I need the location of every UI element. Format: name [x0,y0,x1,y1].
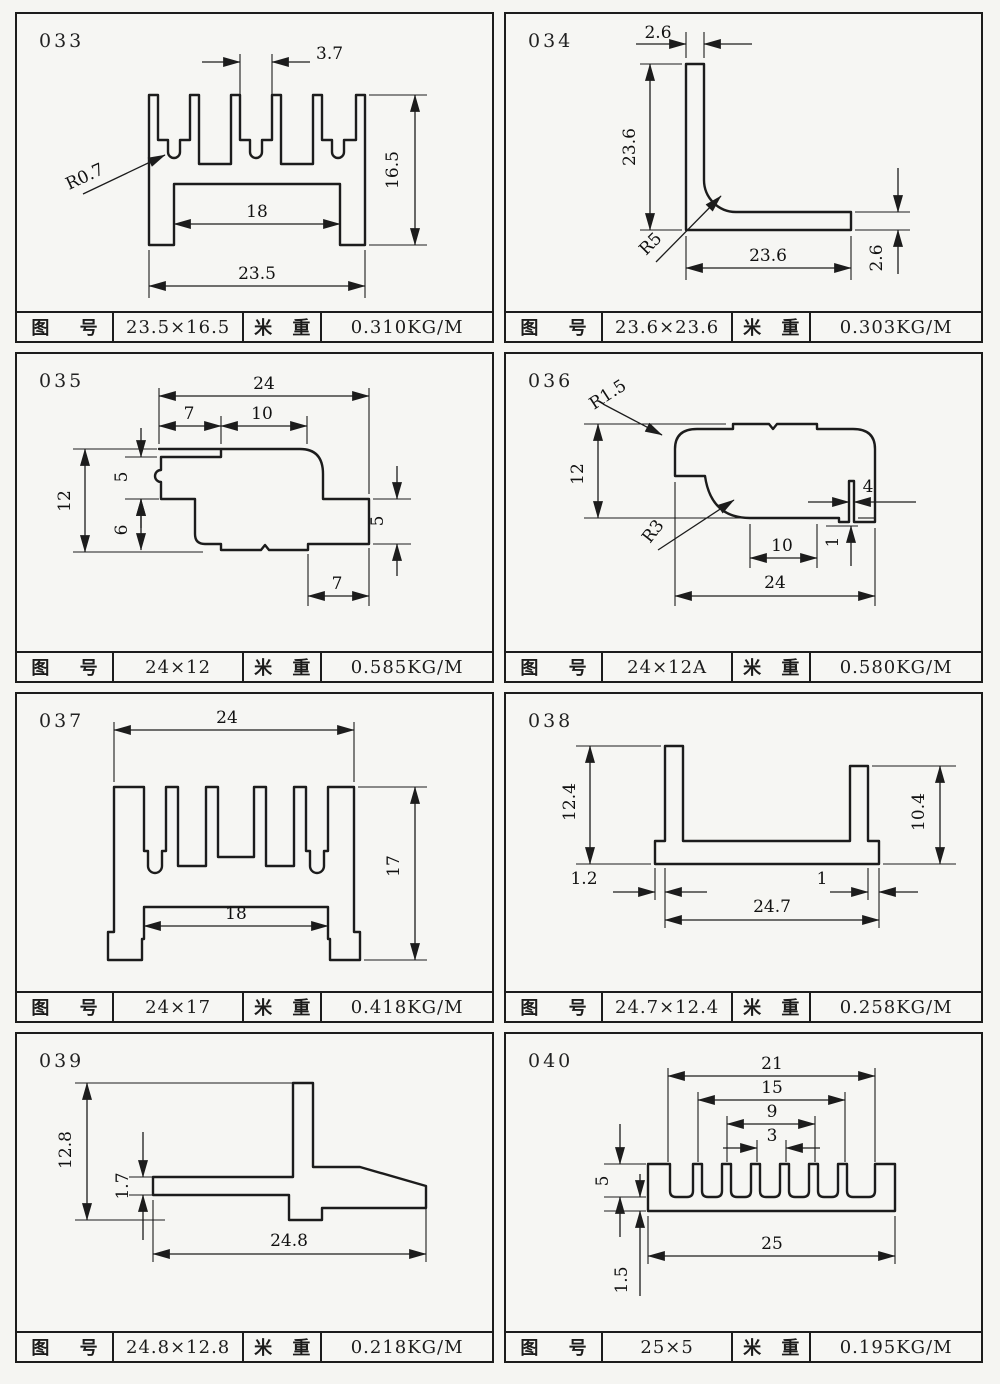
spec-table: 图 号 23.6×23.6 米 重 0.303KG/M [506,311,981,341]
spec-table: 图 号 24×12A 米 重 0.580KG/M [506,651,981,681]
technical-drawing-033: 3.7 16.5 18 23.5 R0.7 [17,14,492,311]
dim-label: 24 [253,374,275,394]
dim-label: 5 [368,516,388,527]
extrusion-profile [108,787,360,960]
weight-value: 0.195KG/M [811,1333,981,1361]
dim-label: 25 [761,1234,783,1254]
weight-value: 0.218KG/M [322,1333,492,1361]
dim-label: 1.7 [113,1172,133,1199]
dim-label: 9 [767,1102,778,1122]
dim-label: 24.7 [753,897,791,917]
drawing-037: 037 24 17 18 [17,694,492,991]
extrusion-profile [675,424,875,522]
dim-label: 18 [246,202,268,222]
radius-label: R0.7 [63,160,108,195]
profile-cell-033: 033 3.7 16.5 18 23.5 R0.7 [15,12,494,343]
dim-label: 21 [761,1054,783,1074]
technical-drawing-035: 24 7 10 12 5 6 [17,354,492,651]
label-meter-weight: 米 重 [733,313,811,341]
dimension-lines: R1.5 12 R3 4 1 10 [568,376,916,606]
weight-value: 0.418KG/M [322,993,492,1021]
profile-cell-036: 036 R1.5 12 R3 4 1 [504,352,983,683]
profile-cell-035: 035 24 7 10 12 [15,352,494,683]
dimension-lines: 12.4 10.4 1.2 24.7 1 [560,746,956,928]
spec-table: 图 号 25×5 米 重 0.195KG/M [506,1331,981,1361]
dim-label: 10 [251,404,273,424]
extrusion-profile [655,746,879,864]
extrusion-profile [648,1164,895,1211]
spec-table: 图 号 24.7×12.4 米 重 0.258KG/M [506,991,981,1021]
label-drawing-no: 图 号 [17,1333,114,1361]
size-value: 23.5×16.5 [114,313,244,341]
technical-drawing-036: R1.5 12 R3 4 1 10 [506,354,981,651]
label-drawing-no: 图 号 [506,993,603,1021]
drawing-number: 035 [39,370,84,392]
label-drawing-no: 图 号 [506,1333,603,1361]
label-meter-weight: 米 重 [244,313,322,341]
dim-label: 5 [112,472,132,483]
drawing-034: 034 2.6 23.6 R5 23.6 [506,14,981,311]
dim-label: 23.6 [620,128,640,166]
dimension-lines: 3.7 16.5 18 23.5 R0.7 [63,44,427,298]
catalog-sheet: 033 3.7 16.5 18 23.5 R0.7 [15,12,985,1363]
label-drawing-no: 图 号 [17,653,114,681]
weight-value: 0.258KG/M [811,993,981,1021]
radius-label: R1.5 [586,376,630,414]
technical-drawing-040: 21 15 9 3 5 [506,1034,981,1331]
weight-value: 0.580KG/M [811,653,981,681]
dimension-lines: 21 15 9 3 5 [593,1054,895,1296]
dim-label: 1.5 [612,1266,632,1293]
dimension-lines: 24 7 10 12 5 6 [55,374,411,606]
dim-label: 12 [568,463,588,485]
dim-label: 2.6 [644,23,671,43]
label-drawing-no: 图 号 [506,653,603,681]
extrusion-profile [153,1083,426,1220]
spec-table: 图 号 24×17 米 重 0.418KG/M [17,991,492,1021]
dim-label: 18 [225,904,247,924]
dim-label: 10.4 [909,793,929,831]
drawing-040: 040 21 15 9 3 [506,1034,981,1331]
drawing-number: 037 [39,710,84,732]
dimension-lines: 2.6 23.6 R5 23.6 2.6 [620,23,910,280]
dim-label: 1 [817,869,828,889]
label-meter-weight: 米 重 [244,653,322,681]
profile-cell-039: 039 12.8 1.7 24.8 图 号 24.8×12. [15,1032,494,1363]
dim-label: 12.8 [56,1131,76,1169]
drawing-039: 039 12.8 1.7 24.8 [17,1034,492,1331]
dim-label: 6 [112,525,132,536]
size-value: 25×5 [603,1333,733,1361]
drawing-036: 036 R1.5 12 R3 4 1 [506,354,981,651]
profile-cell-040: 040 21 15 9 3 [504,1032,983,1363]
dim-label: 23.5 [238,264,276,284]
dim-label: 23.6 [749,246,787,266]
technical-drawing-038: 12.4 10.4 1.2 24.7 1 [506,694,981,991]
dim-label: 17 [384,855,404,877]
technical-drawing-037: 24 17 18 [17,694,492,991]
dim-label: 24.8 [270,1231,308,1251]
label-drawing-no: 图 号 [17,313,114,341]
size-value: 23.6×23.6 [603,313,733,341]
size-value: 24.8×12.8 [114,1333,244,1361]
technical-drawing-034: 2.6 23.6 R5 23.6 2.6 [506,14,981,311]
extrusion-profile [149,95,365,245]
profile-cell-034: 034 2.6 23.6 R5 23.6 [504,12,983,343]
drawing-number: 033 [39,30,84,52]
dimension-lines: 12.8 1.7 24.8 [56,1083,426,1262]
dim-label: 24 [764,573,786,593]
dim-label: 12.4 [560,783,580,821]
spec-table: 图 号 23.5×16.5 米 重 0.310KG/M [17,311,492,341]
size-value: 24×12 [114,653,244,681]
extrusion-profile [155,449,369,550]
weight-value: 0.303KG/M [811,313,981,341]
drawing-033: 033 3.7 16.5 18 23.5 R0.7 [17,14,492,311]
technical-drawing-039: 12.8 1.7 24.8 [17,1034,492,1331]
size-value: 24×12A [603,653,733,681]
drawing-number: 039 [39,1050,84,1072]
dimension-lines: 24 17 18 [114,708,427,960]
dim-label: 7 [184,404,195,424]
drawing-number: 034 [528,30,573,52]
radius-label: R5 [635,229,666,260]
radius-label: R3 [638,516,668,547]
spec-table: 图 号 24×12 米 重 0.585KG/M [17,651,492,681]
drawing-number: 036 [528,370,573,392]
size-value: 24×17 [114,993,244,1021]
label-meter-weight: 米 重 [244,993,322,1021]
dim-label: 16.5 [383,151,403,189]
dim-label: 3.7 [316,44,343,64]
profile-cell-037: 037 24 17 18 图 号 24×17 米 重 0.418KG/M [15,692,494,1023]
dim-label: 24 [216,708,238,728]
label-drawing-no: 图 号 [17,993,114,1021]
dim-label: 10 [771,536,793,556]
dim-label: 5 [593,1176,613,1187]
label-meter-weight: 米 重 [733,993,811,1021]
weight-value: 0.585KG/M [322,653,492,681]
extrusion-profile [686,64,851,230]
drawing-038: 038 12.4 10.4 1.2 24.7 [506,694,981,991]
drawing-number: 040 [528,1050,573,1072]
label-meter-weight: 米 重 [244,1333,322,1361]
dim-label: 15 [761,1078,783,1098]
spec-table: 图 号 24.8×12.8 米 重 0.218KG/M [17,1331,492,1361]
dim-label: 4 [863,477,874,497]
label-meter-weight: 米 重 [733,653,811,681]
dim-label: 7 [332,574,343,594]
drawing-035: 035 24 7 10 12 [17,354,492,651]
dim-label: 1.2 [570,869,597,889]
size-value: 24.7×12.4 [603,993,733,1021]
label-drawing-no: 图 号 [506,313,603,341]
label-meter-weight: 米 重 [733,1333,811,1361]
dim-label: 3 [767,1126,778,1146]
dim-label: 2.6 [867,244,887,271]
dim-label: 12 [55,490,75,512]
profile-cell-038: 038 12.4 10.4 1.2 24.7 [504,692,983,1023]
weight-value: 0.310KG/M [322,313,492,341]
dim-label: 1 [823,537,843,548]
drawing-number: 038 [528,710,573,732]
